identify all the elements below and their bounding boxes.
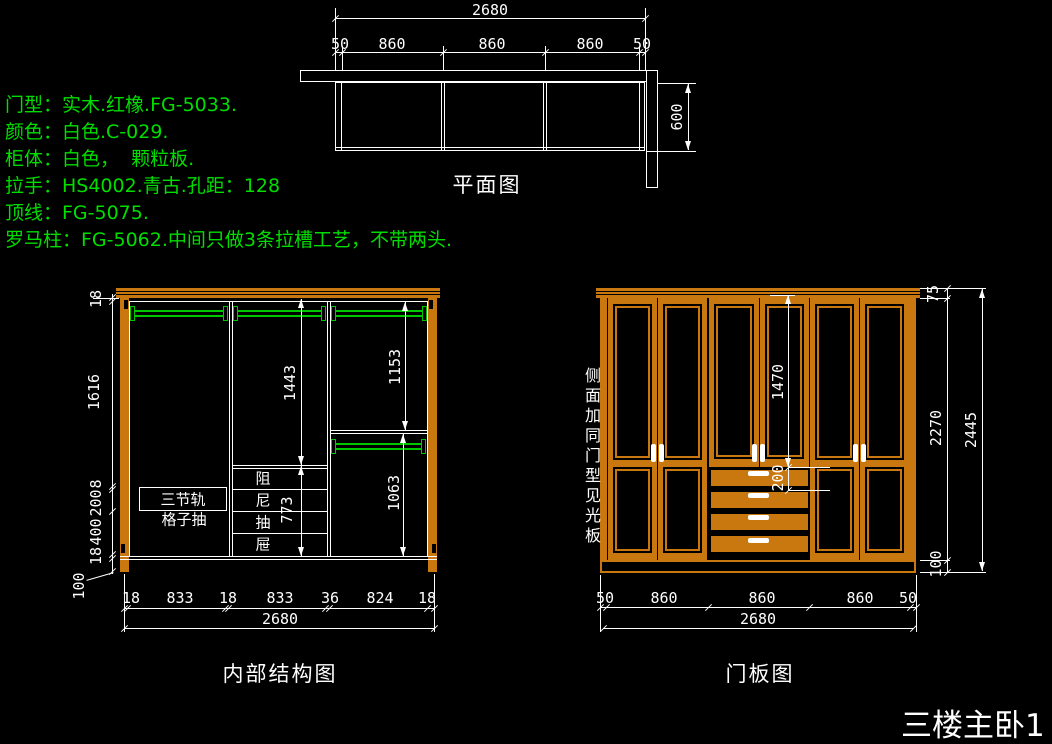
wall-top <box>300 70 658 82</box>
drawer-handle <box>748 471 769 476</box>
dim-bottom: 833 <box>166 589 193 607</box>
dim-line <box>603 628 913 629</box>
arrow-down <box>298 547 304 556</box>
bottom-board-line <box>120 556 437 557</box>
dim-line <box>600 607 916 608</box>
corner-notch <box>124 300 128 309</box>
door-panel-middle <box>716 306 752 457</box>
dim-line <box>335 52 645 53</box>
dim-bottom: 50 <box>596 589 614 607</box>
ext-line <box>788 467 830 468</box>
door-handle <box>853 444 858 462</box>
door-panel-lower <box>817 469 852 551</box>
partition <box>330 301 331 556</box>
rod-bracket <box>321 306 326 321</box>
dim-bottom: 860 <box>748 589 775 607</box>
bay-side-line <box>427 301 428 556</box>
dim-bottom: 824 <box>366 589 393 607</box>
damping-char: 屉 <box>255 534 270 555</box>
hanger-rod-lower <box>336 443 421 450</box>
door-panel-lower <box>665 469 700 551</box>
dim-bottom: 860 <box>650 589 677 607</box>
crown-line <box>116 291 440 292</box>
ext-line <box>545 46 546 71</box>
arrow-down <box>298 456 304 465</box>
dim-bottom: 18 <box>122 589 140 607</box>
dim-left: 18 <box>87 290 105 308</box>
shelf-line <box>330 430 428 431</box>
arrow-up <box>402 302 408 311</box>
dim-mid-upper: 1443 <box>281 365 299 401</box>
plan-divider <box>441 83 442 150</box>
drawer-handle <box>748 493 769 498</box>
door-panel-upper <box>817 306 852 458</box>
arrow-down <box>402 421 408 430</box>
door-handle <box>651 444 656 462</box>
cad-drawing-canvas: 门型：实木.红橡.FG-5033. 颜色：白色.C-029. 柜体：白色， 颗粒… <box>0 0 1052 744</box>
door-panel-lower <box>867 469 902 551</box>
drawer-line <box>232 468 327 469</box>
drawing-label: 三楼主卧1 <box>901 700 1045 744</box>
plan-divider <box>639 83 640 150</box>
plan-divider <box>444 83 445 150</box>
partition <box>327 301 328 556</box>
dim-left: 1616 <box>85 374 103 410</box>
arrow-down <box>400 547 406 556</box>
dim-bottom-total: 2680 <box>740 610 776 628</box>
dim-line <box>335 18 645 19</box>
side-note: 侧面加同门型见光板 <box>579 367 603 563</box>
drawer-handle <box>748 538 769 543</box>
plan-inner-line <box>336 147 644 148</box>
dim-line <box>982 289 983 571</box>
dim-drawer-height: 200 <box>769 464 787 491</box>
drawer-line <box>232 465 327 466</box>
dim-right-upper: 1153 <box>386 349 404 385</box>
dim-drawers: 773 <box>278 496 296 523</box>
dim-line <box>301 299 302 556</box>
corner-notch <box>121 544 125 553</box>
ext-line <box>639 46 640 71</box>
arrow-up <box>685 84 691 93</box>
crown-line <box>116 294 440 295</box>
ext-line <box>443 46 444 71</box>
right-stile <box>428 298 437 572</box>
dim-line <box>788 295 789 467</box>
dim-bottom: 860 <box>846 589 873 607</box>
spec-line-door-type: 门型：实木.红橡.FG-5033. <box>5 90 237 117</box>
wall-right <box>646 70 658 188</box>
door-panel-upper <box>665 306 700 458</box>
dim-body: 2270 <box>927 410 945 446</box>
plan-divider <box>546 83 547 150</box>
plinth-base <box>600 560 916 573</box>
shelf-line <box>330 433 428 434</box>
corner-notch <box>429 300 433 309</box>
dim-left: 400 <box>87 518 105 545</box>
dim-right-lower: 1063 <box>385 475 403 511</box>
dim-line <box>124 608 435 609</box>
arrow-down <box>979 562 985 571</box>
arrow-up <box>298 299 304 308</box>
arrow-up <box>785 295 791 304</box>
plan-dim-seg: 50 <box>331 35 349 53</box>
door-title: 门板图 <box>726 658 795 688</box>
internal-title: 内部结构图 <box>223 658 338 688</box>
dim-left: 200 <box>87 489 105 516</box>
spec-line-handle: 拉手：HS4002.青古.孔距：128 <box>5 171 280 198</box>
bay-side-line <box>129 301 130 556</box>
arrow-up <box>979 289 985 298</box>
door-handle <box>659 444 664 462</box>
ext-line <box>788 490 830 491</box>
dim-line <box>947 288 948 572</box>
ext-line <box>646 151 696 152</box>
dim-line <box>405 302 406 430</box>
rod-bracket <box>223 306 228 321</box>
plan-dim-seg: 860 <box>576 35 603 53</box>
top-board-line <box>129 301 428 302</box>
dim-line <box>112 294 113 574</box>
grid-drawer-label: 格子抽 <box>161 509 206 530</box>
partition <box>229 301 230 556</box>
ext-line <box>342 46 343 71</box>
door-handle <box>861 444 866 462</box>
rod-bracket <box>422 306 427 321</box>
spec-line-color: 颜色：白色.C-029. <box>5 117 168 144</box>
door-panel-upper <box>867 306 902 458</box>
ext-line <box>770 295 795 296</box>
dim-total-height: 2445 <box>962 412 980 448</box>
door-handle <box>752 444 757 462</box>
rod-bracket <box>421 439 426 454</box>
plan-divider <box>543 83 544 150</box>
damping-char: 阻 <box>255 468 270 489</box>
dim-bottom: 833 <box>266 589 293 607</box>
corner-notch <box>432 544 436 553</box>
door-panel-lower <box>615 469 650 551</box>
plan-wardrobe-outline <box>335 82 645 151</box>
plan-dim-seg: 860 <box>478 35 505 53</box>
door-handle <box>760 444 765 462</box>
dim-crown: 75 <box>924 285 942 303</box>
crown-molding <box>116 288 440 298</box>
dim-line <box>788 467 789 490</box>
hanger-rod <box>135 310 223 317</box>
spec-line-cabinet: 柜体：白色， 颗粒板. <box>5 144 194 171</box>
hanger-rod <box>336 310 422 317</box>
arrow-down <box>685 141 691 150</box>
drawer-line <box>232 533 327 534</box>
drawer-line <box>232 489 327 490</box>
bottom-board-line <box>120 559 437 560</box>
plan-dim-depth: 600 <box>668 103 686 130</box>
crown-line <box>596 291 920 292</box>
partition <box>232 301 233 556</box>
plan-divider <box>341 83 342 150</box>
damping-char: 尼 <box>255 490 270 511</box>
damping-char: 抽 <box>255 512 270 533</box>
hanger-rod <box>238 310 321 317</box>
dim-left: 100 <box>70 572 88 599</box>
spec-line-crown: 顶线：FG-5075. <box>5 198 149 225</box>
dim-plinth: 100 <box>927 550 945 577</box>
crown-molding <box>596 288 920 298</box>
leader-line <box>86 572 113 581</box>
plan-dim-seg: 860 <box>378 35 405 53</box>
rail-drawer-label: 三节轨 <box>160 489 205 510</box>
dim-line <box>403 434 404 556</box>
dim-line <box>124 628 435 629</box>
dim-bottom: 18 <box>418 589 436 607</box>
dim-door-height: 1470 <box>769 364 787 400</box>
crown-line <box>596 294 920 295</box>
drawer-handle <box>748 515 769 520</box>
spec-line-roman-column: 罗马柱：FG-5062.中间只做3条拉槽工艺，不带两头. <box>5 225 452 252</box>
left-stile <box>120 298 129 572</box>
dim-left: 8 <box>87 479 105 488</box>
dim-bottom: 36 <box>321 589 339 607</box>
plan-title: 平面图 <box>453 169 522 199</box>
arrow-up <box>400 434 406 443</box>
dim-bottom-total: 2680 <box>262 610 298 628</box>
door-panel-upper <box>615 306 650 458</box>
dim-left: 18 <box>87 547 105 565</box>
plan-dim-total: 2680 <box>472 1 508 19</box>
arrow-up <box>298 466 304 475</box>
end-panel <box>909 298 916 560</box>
